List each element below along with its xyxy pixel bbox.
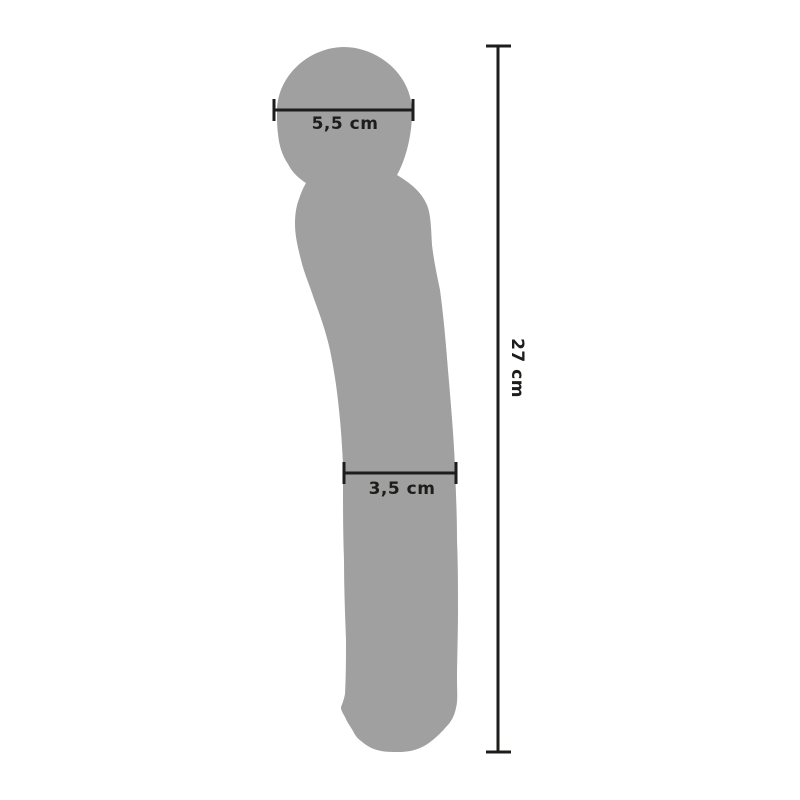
length-label: 27 cm — [487, 338, 547, 398]
head-width-label: 5,5 cm — [277, 116, 413, 133]
product-dimension-diagram: 5,5 cm 3,5 cm 27 cm — [0, 0, 800, 800]
shaft-width-label: 3,5 cm — [346, 481, 458, 498]
length-dimension-line — [486, 46, 511, 752]
product-silhouette — [277, 47, 458, 752]
